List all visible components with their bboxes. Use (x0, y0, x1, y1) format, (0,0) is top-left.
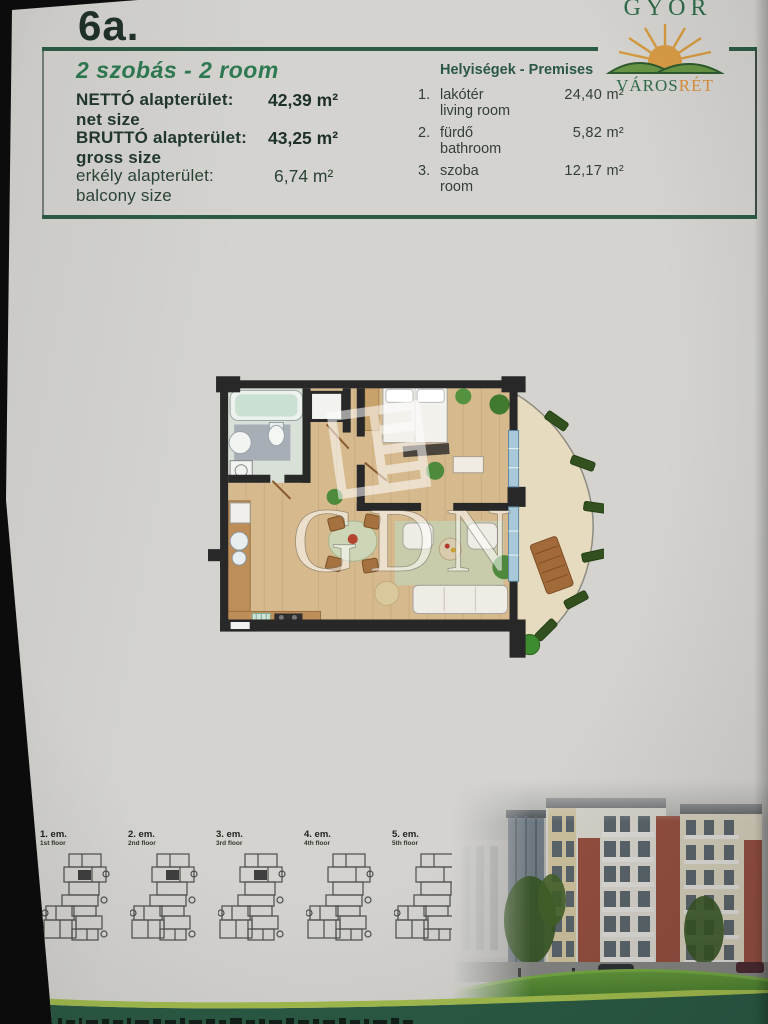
toilet (268, 426, 284, 446)
premises-name-en: room (440, 179, 536, 195)
varosret-logo: GYŐR VÁROSRÉT (598, 0, 732, 96)
box-top-rule-left (42, 47, 598, 51)
photographed-datasheet: 6a. 2 szobás - 2 room NETTÓ alapterület:… (0, 0, 768, 1024)
dresser (453, 457, 483, 473)
premises-item-number: 2. (418, 125, 440, 157)
floor-label-en: 3rd floor (216, 840, 298, 848)
watermark-text: GDN (292, 489, 522, 591)
premises-name-hu: fürdő (440, 125, 536, 141)
washbasin (229, 432, 251, 454)
premises-name-en: living room (440, 103, 536, 119)
floor-locator-strip: 1. em. 1st floor 2. em. 2nd floor 3. em.… (34, 830, 474, 942)
logo-brand-name: VÁROSRÉT (598, 76, 732, 96)
floor-label-hu: 3. em. (216, 830, 298, 840)
premises-item-bathroom: 2. fürdő bathroom 5,82 m² (418, 125, 656, 157)
floor-item-1: 1. em. 1st floor (34, 830, 122, 942)
kitchen-sink (230, 532, 248, 550)
floor-item-3: 3. em. 3rd floor (210, 830, 298, 942)
premises-name-en: bathroom (440, 141, 536, 157)
sun-over-hills-icon (602, 22, 728, 74)
floor-label-en: 4th floor (304, 840, 386, 848)
mini-floorplan (42, 850, 112, 942)
net-size-value: 42,39 m² (268, 91, 338, 110)
mini-floorplan (130, 850, 200, 942)
gross-size-row: BRUTTÓ alapterület: 43,25 m² gross size (76, 129, 446, 167)
premises-item-name: szoba room (440, 163, 536, 195)
gross-size-value: 43,25 m² (268, 129, 338, 148)
gross-size-label-en: gross size (76, 149, 446, 168)
logo-city-name: GYŐR (603, 0, 732, 22)
apartment-floor-plan: GDN (206, 372, 604, 674)
premises-item-value: 12,17 m² (536, 163, 624, 195)
logo-brand-part1: VÁROS (616, 76, 679, 95)
fridge (230, 503, 250, 523)
mini-floorplan (218, 850, 288, 942)
mini-floorplan (306, 850, 376, 942)
floor-label-en: 1st floor (40, 840, 122, 848)
balcony (511, 394, 604, 654)
premises-item-value: 5,82 m² (536, 125, 624, 157)
net-size-label-en: net size (76, 111, 446, 130)
floor-label-hu: 4. em. (304, 830, 386, 840)
premises-item-number: 3. (418, 163, 440, 195)
logo-brand-part2: RÉT (679, 76, 714, 95)
balcony-size-label-en: balcony size (76, 187, 446, 206)
net-size-label-hu: NETTÓ alapterület: (76, 90, 234, 109)
floor-item-4: 4. em. 4th floor (298, 830, 386, 942)
premises-item-room: 3. szoba room 12,17 m² (418, 163, 656, 195)
premises-item-number: 1. (418, 87, 440, 119)
premises-item-name: fürdő bathroom (440, 125, 536, 157)
premises-item-name: lakótér living room (440, 87, 536, 119)
plant (455, 388, 471, 404)
floor-item-2: 2. em. 2nd floor (122, 830, 210, 942)
floor-label-hu: 1. em. (40, 830, 122, 840)
premises-name-hu: szoba (440, 163, 536, 179)
apartment-type-title: 2 szobás - 2 room (76, 57, 446, 84)
paper-sheet: 6a. 2 szobás - 2 room NETTÓ alapterület:… (0, 0, 768, 1024)
box-bottom-rule (42, 215, 757, 219)
floor-label-en: 2nd floor (128, 840, 210, 848)
area-summary: 2 szobás - 2 room NETTÓ alapterület: 42,… (76, 57, 446, 205)
balcony-size-label-hu: erkély alapterület: (76, 166, 214, 185)
building-rendering (452, 780, 768, 1012)
balcony-size-row: erkély alapterület: 6,74 m² balcony size (76, 167, 446, 205)
unit-label: 6a. (78, 2, 139, 50)
floor-label-hu: 2. em. (128, 830, 210, 840)
balcony-size-value: 6,74 m² (274, 167, 333, 186)
plant (489, 394, 509, 414)
entry-door (230, 621, 250, 629)
net-size-row: NETTÓ alapterület: 42,39 m² net size (76, 91, 446, 129)
box-top-rule-right (729, 47, 757, 51)
gross-size-label-hu: BRUTTÓ alapterület: (76, 128, 247, 147)
footer-green-band (0, 990, 768, 1024)
premises-name-hu: lakótér (440, 87, 536, 103)
